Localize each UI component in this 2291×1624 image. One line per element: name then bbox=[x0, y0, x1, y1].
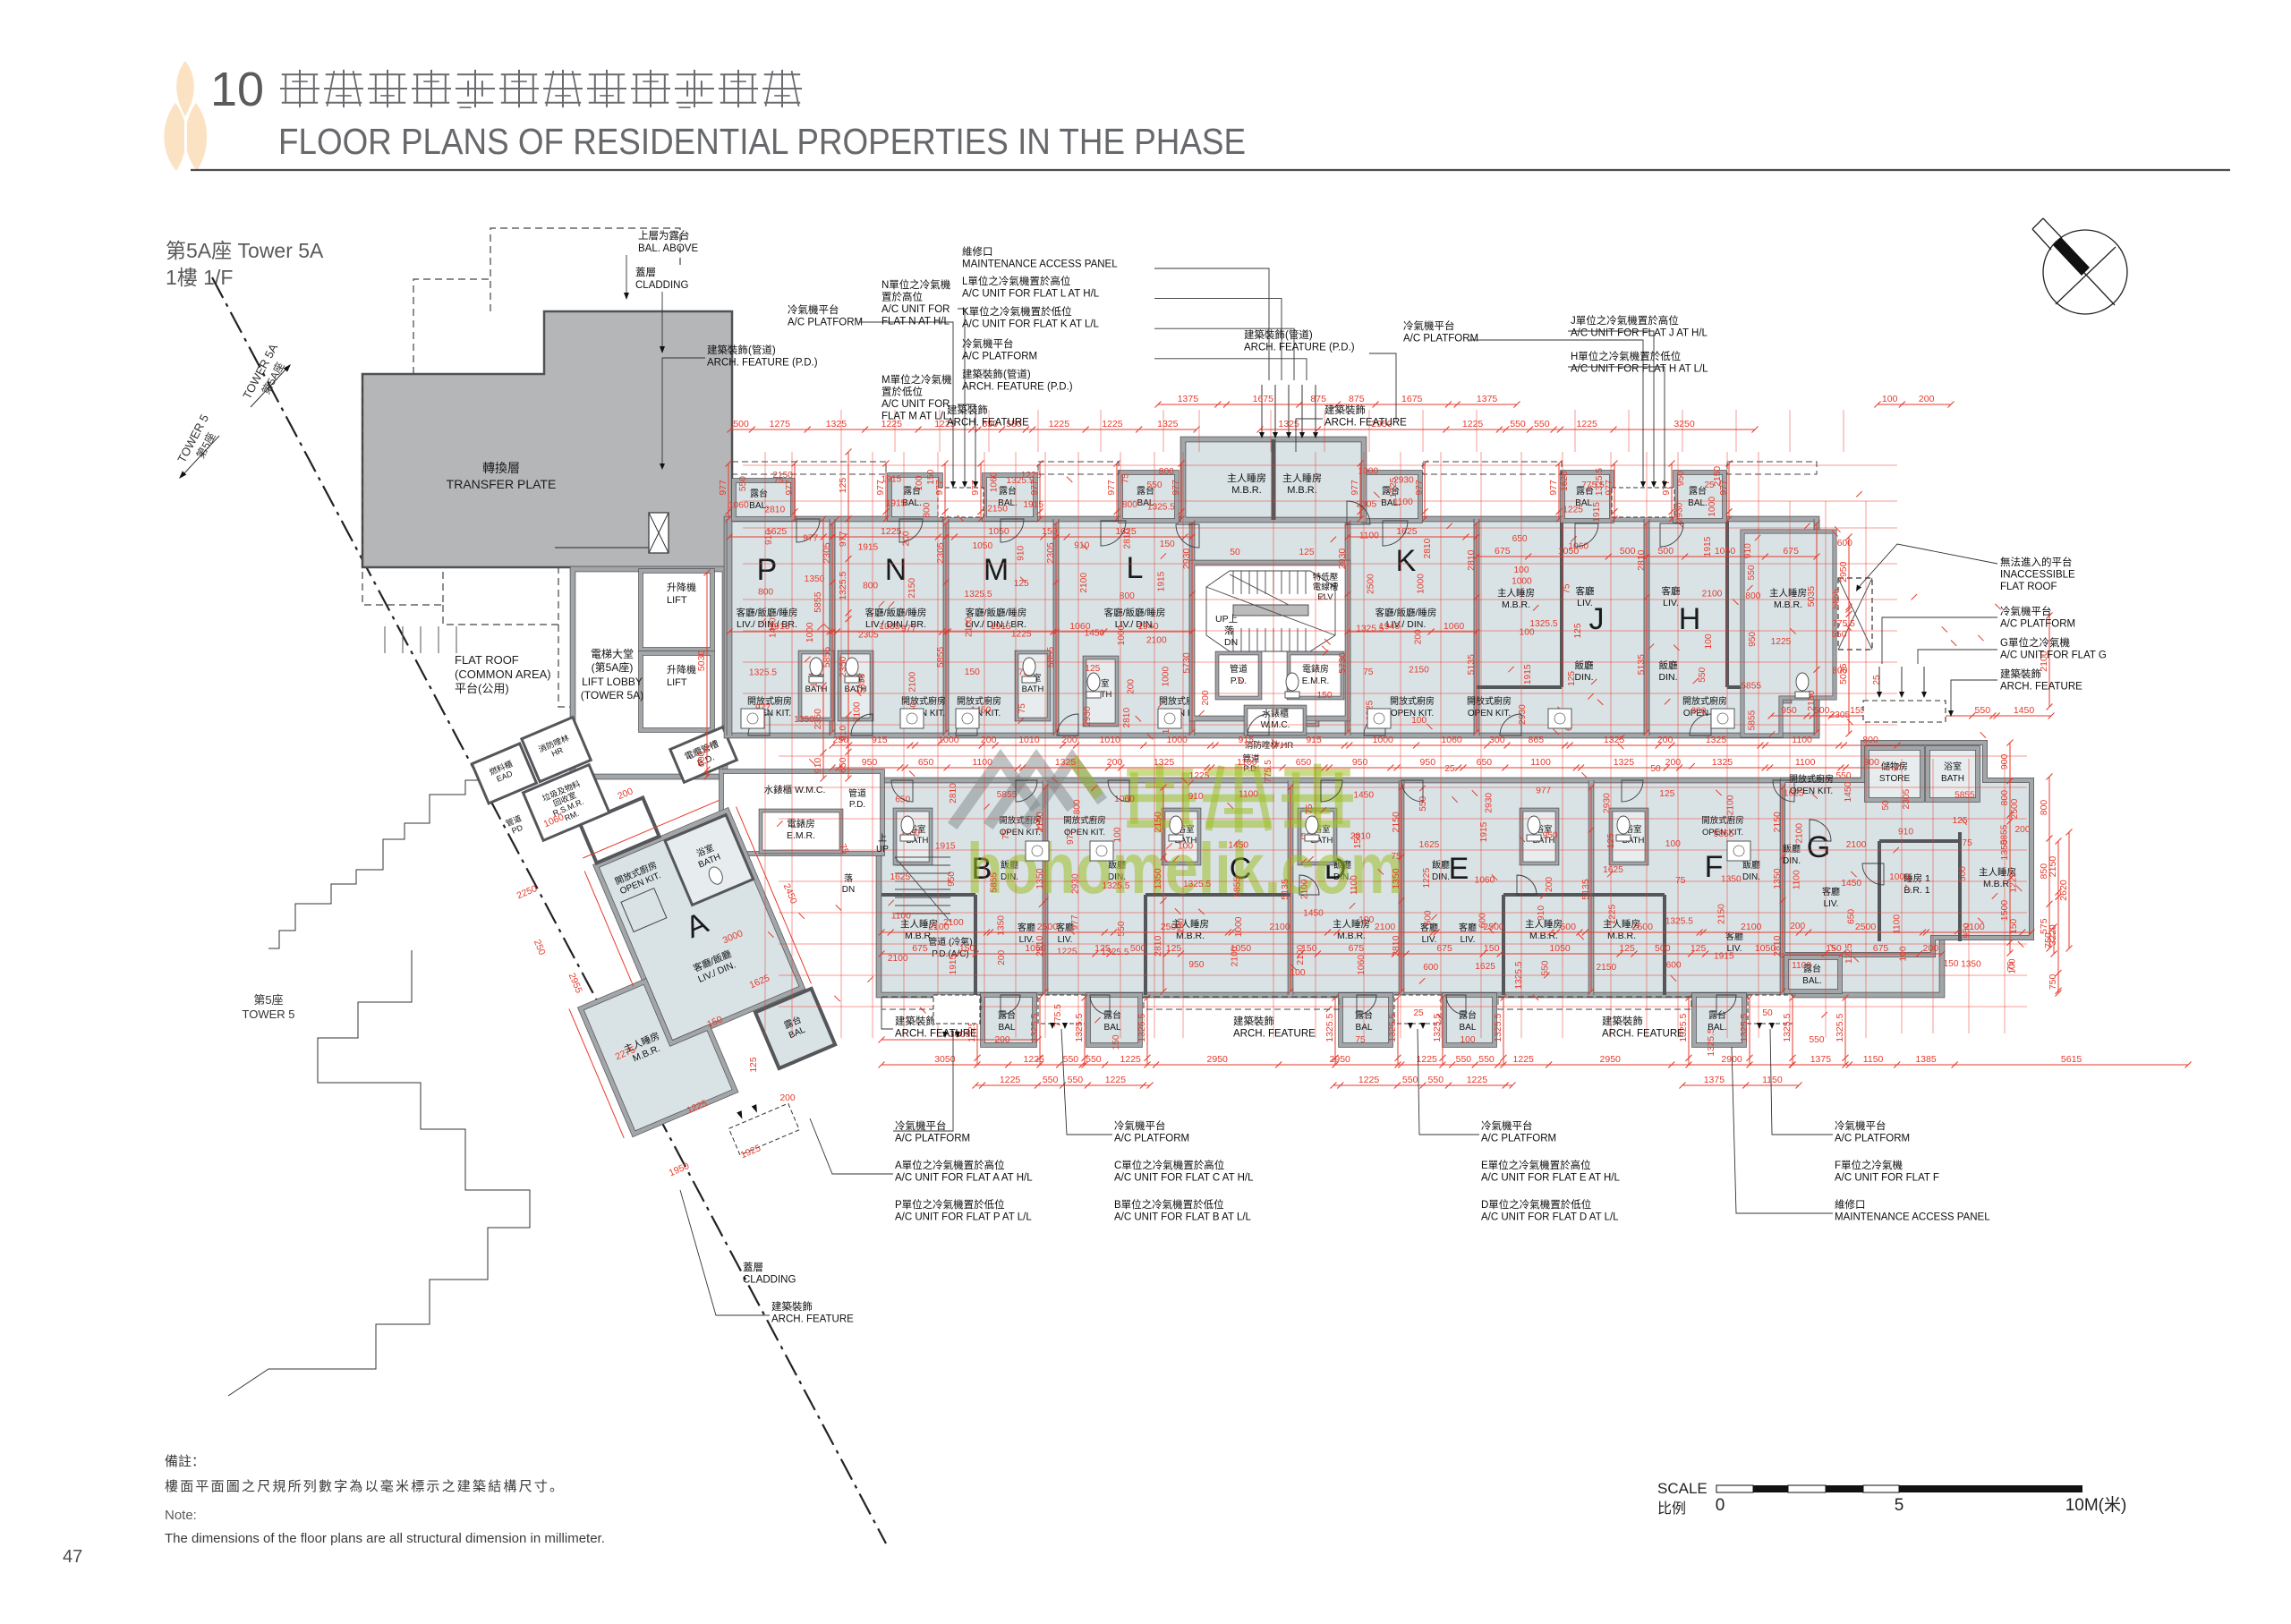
svg-text:2810: 2810 bbox=[1636, 549, 1647, 571]
svg-text:2100: 2100 bbox=[1146, 636, 1167, 646]
svg-text:100: 100 bbox=[1665, 839, 1681, 849]
svg-text:950: 950 bbox=[947, 872, 957, 887]
svg-text:比例: 比例 bbox=[1657, 1501, 1686, 1517]
svg-text:A/C PLATFORM: A/C PLATFORM bbox=[788, 318, 863, 328]
svg-text:G單位之冷氣機: G單位之冷氣機 bbox=[2000, 636, 2070, 649]
svg-text:1225: 1225 bbox=[1607, 904, 1617, 924]
svg-text:LIV.: LIV. bbox=[1461, 935, 1476, 945]
svg-text:A/C PLATFORM: A/C PLATFORM bbox=[1403, 334, 1478, 344]
svg-text:BATH: BATH bbox=[1941, 774, 1964, 784]
svg-text:蓋層: 蓋層 bbox=[635, 267, 656, 278]
svg-text:E: E bbox=[1449, 852, 1469, 886]
svg-text:125: 125 bbox=[749, 1057, 759, 1072]
svg-text:1325: 1325 bbox=[1706, 735, 1727, 745]
svg-text:1915: 1915 bbox=[1703, 536, 1713, 557]
svg-text:M.B.R.: M.B.R. bbox=[1231, 485, 1262, 496]
svg-text:1225: 1225 bbox=[1011, 630, 1032, 640]
svg-text:1915: 1915 bbox=[1023, 500, 1043, 510]
svg-text:75: 75 bbox=[1305, 803, 1315, 814]
svg-text:1060: 1060 bbox=[1114, 795, 1135, 804]
svg-text:1275: 1275 bbox=[770, 419, 791, 429]
svg-text:1000: 1000 bbox=[1373, 735, 1394, 745]
svg-text:2100: 2100 bbox=[1296, 945, 1306, 965]
svg-text:BAL: BAL bbox=[999, 1023, 1016, 1033]
svg-text:A/C PLATFORM: A/C PLATFORM bbox=[1114, 1134, 1189, 1144]
svg-text:維修口: 維修口 bbox=[1835, 1198, 1866, 1211]
svg-text:MAINTENANCE ACCESS PANEL: MAINTENANCE ACCESS PANEL bbox=[962, 259, 1118, 270]
svg-text:建築裝飾: 建築裝飾 bbox=[2000, 667, 2041, 680]
svg-text:建築裝飾(管道): 建築裝飾(管道) bbox=[1244, 328, 1313, 341]
svg-text:1樓 1/F: 1樓 1/F bbox=[166, 266, 233, 289]
svg-text:500: 500 bbox=[1130, 943, 1146, 954]
svg-text:1100: 1100 bbox=[972, 757, 992, 768]
svg-text:開放式廚房: 開放式廚房 bbox=[1701, 815, 1744, 826]
svg-text:75: 75 bbox=[1363, 667, 1374, 677]
svg-text:0: 0 bbox=[1716, 1496, 1725, 1515]
svg-text:550: 550 bbox=[1975, 705, 1991, 716]
svg-text:950: 950 bbox=[1188, 960, 1204, 970]
svg-text:1325.5: 1325.5 bbox=[1782, 1013, 1793, 1042]
svg-text:915: 915 bbox=[872, 735, 888, 745]
svg-text:1325: 1325 bbox=[1154, 757, 1175, 768]
svg-text:950: 950 bbox=[1963, 923, 1972, 938]
svg-text:BAL.: BAL. bbox=[1802, 976, 1822, 986]
svg-text:977: 977 bbox=[901, 624, 916, 633]
svg-text:550: 550 bbox=[1063, 1054, 1079, 1065]
svg-text:1000: 1000 bbox=[805, 622, 815, 642]
svg-text:977: 977 bbox=[803, 533, 818, 543]
svg-text:977: 977 bbox=[1548, 480, 1559, 496]
svg-text:1940: 1940 bbox=[1137, 621, 1159, 632]
svg-text:維修口: 維修口 bbox=[962, 245, 993, 258]
svg-text:B.R. 1: B.R. 1 bbox=[1903, 885, 1929, 896]
svg-text:675: 675 bbox=[1783, 546, 1799, 557]
svg-text:200: 200 bbox=[1413, 629, 1423, 644]
svg-text:200: 200 bbox=[981, 735, 997, 745]
svg-text:冷氣機平台: 冷氣機平台 bbox=[2000, 605, 2052, 617]
svg-text:200: 200 bbox=[997, 949, 1007, 965]
svg-text:1450: 1450 bbox=[1844, 781, 1853, 802]
svg-text:1000: 1000 bbox=[1512, 577, 1532, 587]
svg-text:1325.5: 1325.5 bbox=[749, 667, 777, 677]
svg-text:910: 910 bbox=[1743, 543, 1753, 558]
svg-text:550: 550 bbox=[1478, 1054, 1495, 1065]
svg-text:200: 200 bbox=[902, 531, 912, 546]
svg-text:950: 950 bbox=[1781, 705, 1797, 716]
svg-text:2150: 2150 bbox=[1391, 812, 1401, 833]
svg-text:1060: 1060 bbox=[1357, 955, 1367, 975]
svg-text:LIV.: LIV. bbox=[1058, 935, 1073, 945]
svg-text:1225: 1225 bbox=[1189, 771, 1210, 781]
svg-text:1225: 1225 bbox=[1467, 1075, 1488, 1085]
svg-text:1225: 1225 bbox=[1422, 868, 1432, 889]
svg-text:(第5A座): (第5A座) bbox=[592, 660, 634, 674]
svg-text:2950: 2950 bbox=[1600, 1054, 1622, 1065]
svg-text:150: 150 bbox=[1160, 540, 1175, 549]
svg-text:2305: 2305 bbox=[1045, 542, 1056, 564]
svg-text:1225: 1225 bbox=[1462, 419, 1484, 429]
svg-text:電錶房: 電錶房 bbox=[787, 818, 815, 829]
svg-text:550: 550 bbox=[1456, 1054, 1472, 1065]
svg-text:1100: 1100 bbox=[1792, 735, 1812, 745]
svg-text:800: 800 bbox=[1832, 666, 1847, 676]
svg-text:M.B.R.: M.B.R. bbox=[1502, 599, 1530, 610]
svg-text:75: 75 bbox=[1962, 838, 1972, 848]
svg-text:1625: 1625 bbox=[1603, 865, 1623, 875]
svg-text:977: 977 bbox=[784, 480, 795, 496]
svg-text:1100: 1100 bbox=[1792, 961, 1811, 971]
svg-text:1325.5: 1325.5 bbox=[1835, 1013, 1845, 1042]
svg-text:A/C UNIT FOR FLAT J AT H/L: A/C UNIT FOR FLAT J AT H/L bbox=[1571, 328, 1708, 339]
svg-text:3220: 3220 bbox=[2048, 924, 2058, 946]
svg-text:1100: 1100 bbox=[1359, 531, 1379, 540]
svg-text:FLOOR PLANS OF RESIDENTIAL PRO: FLOOR PLANS OF RESIDENTIAL PROPERTIES IN… bbox=[278, 121, 1246, 162]
svg-text:1225: 1225 bbox=[1105, 1075, 1127, 1085]
svg-text:露台: 露台 bbox=[1459, 1009, 1477, 1021]
svg-text:5135: 5135 bbox=[1280, 879, 1290, 900]
svg-text:950: 950 bbox=[1352, 757, 1368, 768]
svg-text:200: 200 bbox=[2015, 825, 2031, 835]
svg-text:675: 675 bbox=[1436, 943, 1452, 954]
svg-text:200: 200 bbox=[1923, 943, 1939, 954]
svg-text:5855: 5855 bbox=[1748, 710, 1758, 730]
svg-text:5855: 5855 bbox=[822, 647, 832, 668]
svg-text:550: 550 bbox=[1068, 1075, 1084, 1085]
svg-text:2150: 2150 bbox=[1716, 904, 1726, 924]
svg-text:500: 500 bbox=[1658, 546, 1674, 557]
svg-text:100: 100 bbox=[1411, 716, 1427, 726]
svg-text:1100: 1100 bbox=[1239, 789, 1258, 799]
svg-text:A/C UNIT FOR FLAT K AT L/L: A/C UNIT FOR FLAT K AT L/L bbox=[962, 319, 1100, 330]
svg-text:N: N bbox=[885, 553, 907, 587]
svg-text:1350: 1350 bbox=[1391, 868, 1401, 889]
svg-text:550: 550 bbox=[1698, 667, 1708, 682]
svg-text:200: 200 bbox=[1657, 735, 1674, 745]
svg-text:開放式廚房: 開放式廚房 bbox=[1682, 695, 1727, 707]
svg-text:1100: 1100 bbox=[1530, 757, 1551, 768]
svg-text:A/C UNIT FOR: A/C UNIT FOR bbox=[881, 304, 950, 315]
svg-text:DIN.: DIN. bbox=[1575, 672, 1594, 683]
svg-text:H單位之冷氣機置於低位: H單位之冷氣機置於低位 bbox=[1571, 350, 1681, 362]
svg-text:910: 910 bbox=[1188, 792, 1204, 802]
svg-text:客廳/飯廳/睡房: 客廳/飯廳/睡房 bbox=[865, 607, 927, 618]
svg-text:1325.5: 1325.5 bbox=[838, 571, 848, 599]
svg-text:875: 875 bbox=[1310, 394, 1326, 404]
svg-text:125: 125 bbox=[1691, 943, 1707, 954]
svg-text:2950: 2950 bbox=[1207, 1054, 1229, 1065]
svg-text:2500: 2500 bbox=[1632, 922, 1654, 932]
svg-text:100: 100 bbox=[1461, 1035, 1476, 1045]
svg-text:800: 800 bbox=[1120, 591, 1135, 601]
svg-text:125: 125 bbox=[1166, 943, 1182, 954]
svg-text:建築裝飾(管道): 建築裝飾(管道) bbox=[707, 344, 776, 356]
svg-text:1450: 1450 bbox=[1303, 909, 1324, 919]
svg-text:550: 550 bbox=[1747, 565, 1757, 580]
svg-text:上層为露台: 上層为露台 bbox=[638, 229, 690, 242]
svg-text:550: 550 bbox=[738, 476, 748, 491]
svg-text:3250: 3250 bbox=[1674, 419, 1695, 429]
svg-text:BAL. ABOVE: BAL. ABOVE bbox=[638, 243, 698, 254]
svg-text:1100: 1100 bbox=[1237, 757, 1257, 768]
svg-text:ARCH. FEATURE: ARCH. FEATURE bbox=[1324, 418, 1407, 429]
svg-text:1100: 1100 bbox=[1795, 757, 1816, 768]
svg-text:1060: 1060 bbox=[1475, 876, 1495, 886]
svg-text:150: 150 bbox=[1111, 1034, 1121, 1050]
svg-text:5855: 5855 bbox=[935, 647, 946, 668]
svg-text:2500: 2500 bbox=[2010, 798, 2020, 819]
svg-text:1325.5: 1325.5 bbox=[1324, 1013, 1335, 1042]
svg-text:600: 600 bbox=[696, 751, 707, 767]
svg-text:1060: 1060 bbox=[990, 472, 1000, 492]
svg-text:M.B.R.: M.B.R. bbox=[1983, 879, 2012, 889]
svg-text:管道: 管道 bbox=[1230, 663, 1248, 675]
svg-text:500: 500 bbox=[733, 419, 749, 429]
svg-text:1350: 1350 bbox=[1035, 868, 1045, 889]
svg-text:A/C UNIT FOR FLAT A AT H/L: A/C UNIT FOR FLAT A AT H/L bbox=[895, 1173, 1033, 1184]
svg-text:550: 550 bbox=[1810, 1035, 1825, 1045]
svg-text:650: 650 bbox=[1296, 757, 1312, 768]
svg-text:125: 125 bbox=[1085, 664, 1100, 674]
svg-text:2100: 2100 bbox=[965, 616, 975, 637]
svg-text:75: 75 bbox=[1001, 829, 1011, 840]
svg-text:STORE: STORE bbox=[1879, 774, 1911, 784]
svg-text:2930: 2930 bbox=[1083, 706, 1093, 727]
svg-text:2950: 2950 bbox=[1838, 561, 1849, 582]
svg-text:1625: 1625 bbox=[1475, 962, 1495, 972]
svg-text:H: H bbox=[1679, 602, 1701, 636]
svg-text:1050: 1050 bbox=[1715, 546, 1736, 557]
svg-text:10: 10 bbox=[210, 63, 264, 116]
svg-text:800: 800 bbox=[758, 588, 773, 598]
svg-text:950: 950 bbox=[1748, 632, 1758, 647]
svg-text:1225: 1225 bbox=[1577, 419, 1598, 429]
svg-text:977: 977 bbox=[1414, 480, 1425, 496]
svg-text:50: 50 bbox=[1881, 800, 1891, 811]
svg-text:特低壓: 特低壓 bbox=[1313, 572, 1339, 582]
svg-text:BATH: BATH bbox=[1022, 684, 1044, 694]
svg-text:DIN.: DIN. bbox=[1742, 872, 1760, 882]
svg-text:1375: 1375 bbox=[1477, 394, 1498, 404]
svg-text:2950: 2950 bbox=[1330, 1054, 1351, 1065]
svg-text:1225: 1225 bbox=[1057, 948, 1077, 957]
svg-text:1325: 1325 bbox=[1712, 757, 1733, 768]
svg-text:2100: 2100 bbox=[1702, 590, 1723, 599]
svg-text:BAL: BAL bbox=[1104, 1023, 1121, 1033]
svg-text:LIV.: LIV. bbox=[1422, 935, 1437, 945]
svg-text:開放式廚房: 開放式廚房 bbox=[1390, 695, 1435, 707]
svg-text:1915: 1915 bbox=[886, 499, 907, 509]
svg-text:875: 875 bbox=[1349, 394, 1365, 404]
svg-text:2810: 2810 bbox=[1391, 935, 1401, 957]
svg-text:500: 500 bbox=[1620, 546, 1636, 557]
svg-text:950: 950 bbox=[1676, 471, 1686, 486]
svg-text:ELV: ELV bbox=[1317, 592, 1333, 602]
svg-text:1000: 1000 bbox=[1234, 916, 1244, 937]
svg-text:1225: 1225 bbox=[1771, 637, 1792, 647]
svg-text:浴室: 浴室 bbox=[1944, 761, 1962, 772]
svg-text:1350: 1350 bbox=[1772, 868, 1783, 889]
svg-text:1450: 1450 bbox=[1841, 879, 1861, 889]
svg-text:開放式廚房: 開放式廚房 bbox=[1467, 695, 1512, 707]
svg-text:200: 200 bbox=[1919, 394, 1935, 404]
svg-text:915: 915 bbox=[1306, 735, 1322, 745]
svg-text:5855: 5855 bbox=[1045, 647, 1056, 668]
svg-text:2150: 2150 bbox=[1596, 963, 1616, 973]
svg-text:150: 150 bbox=[1484, 943, 1500, 954]
svg-text:DIN.: DIN. bbox=[1783, 856, 1801, 866]
svg-text:2100: 2100 bbox=[888, 954, 908, 964]
svg-text:2150: 2150 bbox=[1035, 812, 1045, 833]
svg-text:1325.5: 1325.5 bbox=[1739, 1013, 1750, 1042]
svg-text:977: 977 bbox=[1106, 480, 1117, 496]
svg-text:2305: 2305 bbox=[1902, 788, 1912, 809]
svg-text:200: 200 bbox=[1127, 679, 1137, 694]
svg-text:置於高位: 置於高位 bbox=[881, 291, 923, 303]
svg-text:1915: 1915 bbox=[1157, 571, 1167, 591]
svg-text:600: 600 bbox=[1837, 539, 1852, 548]
svg-text:P.D.: P.D. bbox=[849, 800, 865, 810]
svg-text:升降機: 升降機 bbox=[667, 663, 696, 676]
svg-text:1225: 1225 bbox=[1513, 1054, 1535, 1065]
svg-text:電線槽: 電線槽 bbox=[1313, 582, 1339, 592]
svg-text:1350: 1350 bbox=[1721, 874, 1742, 884]
svg-text:Note:: Note: bbox=[165, 1508, 197, 1523]
svg-text:550: 550 bbox=[1418, 795, 1428, 811]
svg-text:客廳/飯廳/睡房: 客廳/飯廳/睡房 bbox=[1375, 607, 1437, 618]
svg-text:125: 125 bbox=[1606, 833, 1616, 848]
svg-text:150: 150 bbox=[1353, 833, 1363, 848]
svg-text:(TOWER 5A): (TOWER 5A) bbox=[581, 689, 643, 701]
svg-text:865: 865 bbox=[1529, 735, 1545, 745]
svg-text:2810: 2810 bbox=[1035, 935, 1045, 957]
svg-text:主人睡房: 主人睡房 bbox=[1497, 587, 1535, 599]
svg-text:LIFT: LIFT bbox=[667, 677, 687, 688]
svg-text:1350: 1350 bbox=[794, 715, 814, 725]
svg-text:1350: 1350 bbox=[1961, 960, 1981, 970]
svg-text:轉換層: 轉換層 bbox=[482, 461, 520, 475]
svg-text:800: 800 bbox=[1159, 467, 1174, 477]
svg-text:2500: 2500 bbox=[1366, 574, 1375, 594]
svg-text:1325: 1325 bbox=[1055, 757, 1077, 768]
svg-text:675: 675 bbox=[1349, 943, 1365, 954]
svg-text:800: 800 bbox=[1073, 799, 1083, 814]
svg-text:1325.5: 1325.5 bbox=[1707, 1028, 1716, 1056]
svg-text:1325.5: 1325.5 bbox=[1006, 476, 1034, 486]
svg-text:ARCH. FEATURE: ARCH. FEATURE bbox=[2000, 682, 2082, 693]
svg-text:200: 200 bbox=[1790, 922, 1805, 931]
svg-text:1625: 1625 bbox=[1419, 840, 1440, 850]
svg-text:1915: 1915 bbox=[949, 954, 958, 974]
svg-text:2810: 2810 bbox=[1466, 549, 1477, 571]
svg-text:1225: 1225 bbox=[1417, 1054, 1438, 1065]
svg-text:75: 75 bbox=[1120, 473, 1130, 484]
svg-text:2305: 2305 bbox=[935, 542, 946, 564]
svg-text:2930: 2930 bbox=[1070, 873, 1080, 894]
svg-text:977: 977 bbox=[1350, 480, 1360, 496]
svg-text:2150: 2150 bbox=[1409, 665, 1429, 675]
svg-text:主人睡房: 主人睡房 bbox=[1769, 587, 1807, 599]
svg-text:150: 150 bbox=[1317, 691, 1333, 701]
svg-text:75: 75 bbox=[773, 476, 784, 486]
svg-text:75: 75 bbox=[1563, 583, 1572, 594]
svg-text:2500: 2500 bbox=[1037, 922, 1059, 932]
svg-text:1000: 1000 bbox=[1889, 872, 1910, 882]
svg-text:水錶櫃 W.M.C.: 水錶櫃 W.M.C. bbox=[764, 784, 826, 795]
svg-text:977: 977 bbox=[934, 480, 945, 496]
svg-text:1450: 1450 bbox=[2014, 705, 2035, 716]
svg-text:開放式廚房: 開放式廚房 bbox=[901, 695, 946, 707]
svg-text:1915: 1915 bbox=[1523, 664, 1533, 684]
svg-text:2150: 2150 bbox=[1772, 812, 1783, 833]
svg-text:3050: 3050 bbox=[934, 1054, 956, 1065]
svg-text:INACCESSIBLE: INACCESSIBLE bbox=[2000, 570, 2075, 581]
svg-text:550: 550 bbox=[1117, 921, 1127, 936]
svg-text:客廳: 客廳 bbox=[1822, 886, 1840, 897]
svg-text:A/C UNIT FOR FLAT C AT H/L: A/C UNIT FOR FLAT C AT H/L bbox=[1114, 1173, 1254, 1184]
svg-text:露台: 露台 bbox=[1708, 1009, 1726, 1021]
svg-text:1915: 1915 bbox=[1592, 502, 1602, 523]
svg-text:FLAT ROOF: FLAT ROOF bbox=[455, 653, 519, 667]
svg-text:150: 150 bbox=[959, 943, 975, 954]
svg-text:1325: 1325 bbox=[1604, 735, 1625, 745]
svg-text:2810: 2810 bbox=[949, 783, 958, 803]
svg-text:500: 500 bbox=[1655, 943, 1671, 954]
svg-text:5855: 5855 bbox=[1832, 589, 1842, 609]
svg-text:N單位之冷氣機: N單位之冷氣機 bbox=[881, 278, 951, 291]
svg-text:飯廳: 飯廳 bbox=[1783, 843, 1801, 855]
svg-text:950: 950 bbox=[1543, 831, 1558, 841]
svg-text:客廳: 客廳 bbox=[1459, 922, 1477, 933]
svg-text:客廳/飯廳/睡房: 客廳/飯廳/睡房 bbox=[1104, 607, 1166, 618]
svg-text:1325.5: 1325.5 bbox=[1356, 624, 1384, 633]
svg-text:開放式廚房: 開放式廚房 bbox=[1063, 815, 1106, 826]
svg-text:650: 650 bbox=[918, 757, 934, 768]
svg-text:5855: 5855 bbox=[997, 790, 1018, 800]
svg-text:2810: 2810 bbox=[1423, 538, 1433, 558]
svg-text:1325: 1325 bbox=[1279, 419, 1300, 429]
svg-text:200: 200 bbox=[995, 1035, 1010, 1045]
svg-text:上: 上 bbox=[878, 833, 887, 844]
svg-text:200: 200 bbox=[1201, 690, 1211, 705]
svg-text:1625: 1625 bbox=[1784, 789, 1804, 799]
svg-text:2100: 2100 bbox=[1230, 946, 1239, 966]
svg-text:主人睡房: 主人睡房 bbox=[1282, 472, 1322, 484]
svg-text:1000: 1000 bbox=[1708, 497, 1717, 517]
svg-text:775.5: 775.5 bbox=[1832, 619, 1855, 629]
svg-text:建築裝飾: 建築裝飾 bbox=[1602, 1015, 1643, 1027]
svg-text:第5座: 第5座 bbox=[253, 993, 283, 1007]
svg-text:910: 910 bbox=[813, 758, 823, 774]
svg-text:1450: 1450 bbox=[1085, 629, 1105, 639]
svg-text:100: 100 bbox=[915, 475, 924, 490]
svg-text:BAL.: BAL. bbox=[1688, 498, 1708, 508]
svg-text:25: 25 bbox=[1413, 1008, 1424, 1018]
svg-text:1000: 1000 bbox=[1167, 735, 1188, 745]
svg-text:ARCH. FEATURE: ARCH. FEATURE bbox=[895, 1029, 977, 1040]
svg-text:5135: 5135 bbox=[1466, 654, 1477, 676]
svg-text:5: 5 bbox=[1895, 1496, 1904, 1515]
svg-text:1350: 1350 bbox=[997, 915, 1007, 936]
svg-text:ARCH. FEATURE: ARCH. FEATURE bbox=[771, 1314, 854, 1325]
svg-text:開放式廚房: 開放式廚房 bbox=[1789, 773, 1834, 785]
svg-text:1675: 1675 bbox=[1401, 394, 1423, 404]
svg-text:FLAT ROOF: FLAT ROOF bbox=[2000, 582, 2057, 592]
svg-text:800: 800 bbox=[1122, 500, 1137, 510]
svg-text:650: 650 bbox=[1512, 534, 1528, 544]
svg-text:775.5: 775.5 bbox=[1053, 1004, 1063, 1027]
svg-text:2100: 2100 bbox=[907, 672, 917, 693]
svg-text:ARCH. FEATURE (P.D.): ARCH. FEATURE (P.D.) bbox=[962, 382, 1073, 393]
